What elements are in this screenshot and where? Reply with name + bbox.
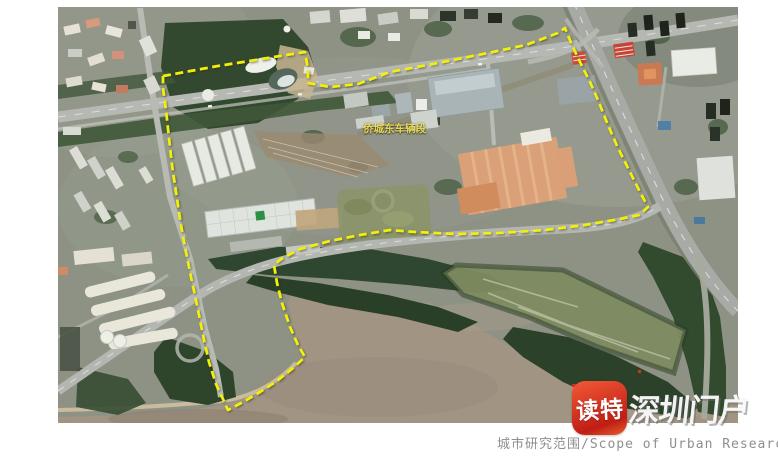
figure-caption: 城市研究范围/Scope of Urban Research: [497, 433, 778, 452]
research-boundary-path: [163, 28, 648, 410]
map-place-label: 侨城东车辆段: [363, 121, 426, 136]
figure: 侨城东车辆段 读特 深圳门户 城市研究范围/Scope of Urban Res…: [0, 0, 778, 458]
research-boundary: [58, 7, 738, 423]
satellite-map: 侨城东车辆段: [58, 7, 738, 423]
